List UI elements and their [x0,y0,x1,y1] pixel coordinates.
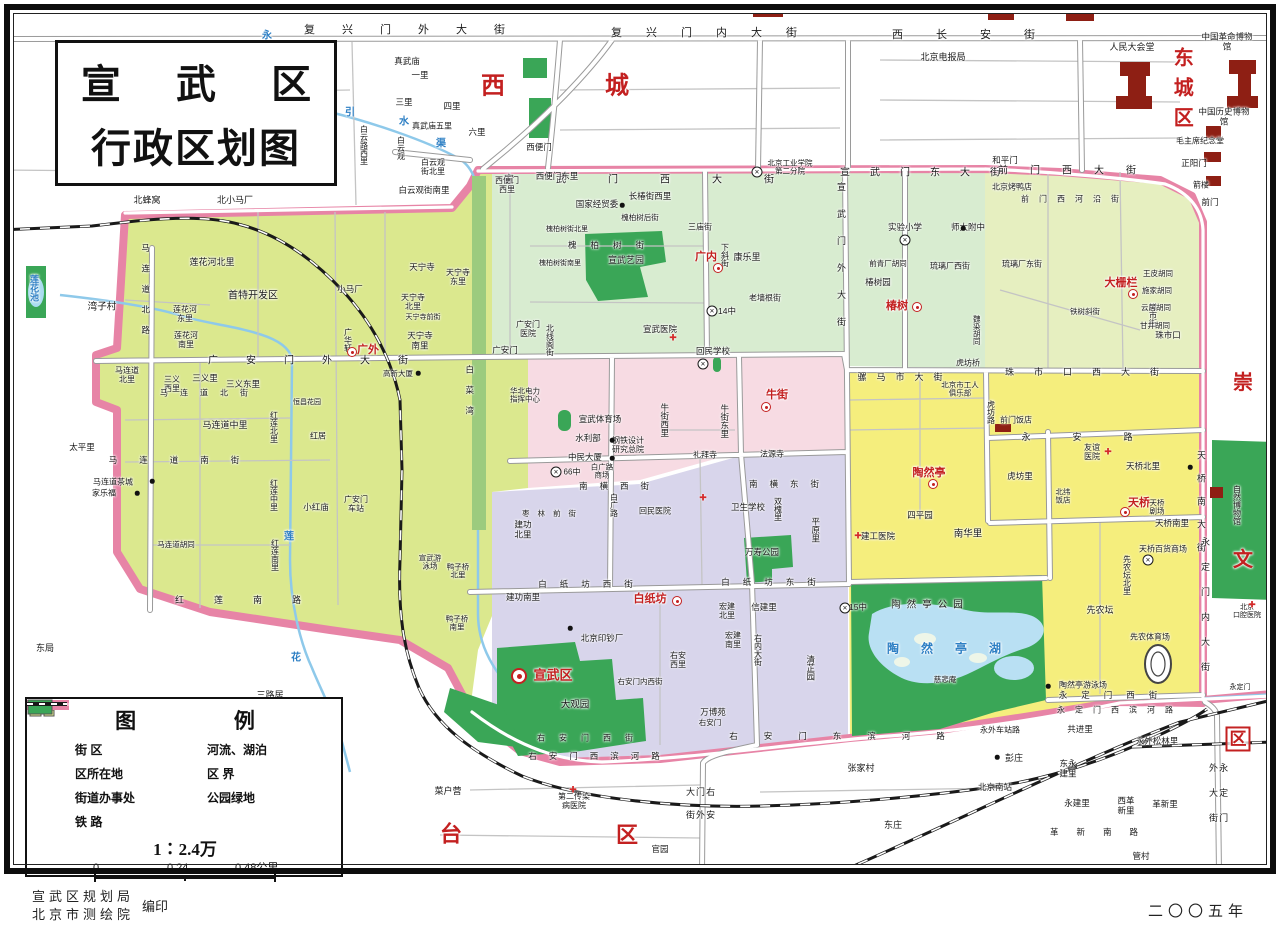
map-label: 万博苑 [700,708,726,718]
map-label: 骡马市大街 [857,372,952,382]
map-label: 宣武区 [533,669,572,684]
map-label: 官园 [651,845,668,855]
map-label: 永定门西滨河路 [1057,707,1183,716]
map-label: 复兴门内大街 [611,27,821,39]
map-label: 万寿公园 [745,548,779,558]
map-label: 前门西河沿街 [1021,196,1129,205]
map-label: 区 [616,824,638,849]
map-label: 师大附中 [951,223,985,233]
map-label: 第二传染 病医院 [558,793,590,811]
map-label: 先农坛 [1086,605,1113,615]
map-label: 东永 建里 [1059,759,1076,778]
map-label: 革新里 [1152,800,1178,810]
map-label: 西便门 西里 [495,177,519,195]
map-label: 鸭子桥 南里 [446,616,469,633]
dot-icon [1188,465,1193,470]
map-label: 永定门 [1230,684,1251,692]
map-label: 北京烤鸭店 [992,184,1032,193]
dot-icon [135,491,140,496]
publisher-suffix: 编印 [142,896,168,915]
map-label: 右安门 [699,719,722,727]
school-icon [551,467,562,478]
map-label: 建功 北里 [514,520,531,539]
map-label: 莲 [284,531,294,542]
map-label: 施家胡同 [1142,287,1172,295]
map-label: 天桥 [1128,497,1150,509]
map-label: 中国历史博物馆 [1196,107,1252,126]
svg-text:0: 0 [93,862,99,874]
map-label: 北京电报局 [920,52,965,62]
office-icon [347,347,357,357]
map-label: 一里 [411,71,428,81]
map-label: 水 [399,116,409,127]
office-icon [928,479,938,489]
map-label: 马连道 北里 [115,367,139,385]
map-label: 华北电力 指挥中心 [510,388,540,405]
huimin-school-green [713,357,721,372]
map-label: 莲花河北里 [189,257,234,267]
map-label: 引 [345,107,355,118]
dot-icon [610,456,615,461]
publisher-line2: 北京市测绘院 [32,906,134,924]
map-label: 右内大街 [753,634,762,666]
map-label: 前门西大街 [998,165,1158,176]
map-label: 中民大厦 [568,453,602,463]
map-label: 白纸坊西街 [538,580,646,590]
dot-icon [620,203,625,208]
legend-item-label: 街 区 [75,741,163,758]
map-label: 椿树园 [865,278,891,288]
map-label: 牛街西里 [659,403,669,437]
map-label: 红莲南路 [175,595,331,605]
map-label: 北小马厂 [217,195,253,205]
map-label: 琉璃厂西街 [930,263,970,272]
map-label: 天宁寺前街 [406,314,441,322]
map-label: 和平门 [992,156,1018,166]
map-label: 钢铁设计 研究总院 [612,437,644,455]
map-label: 右安门外大街 [685,776,715,844]
map-label: 66中 [564,469,581,478]
map-label: 白云观 街北里 [421,159,445,177]
map-label: 大观园 [561,701,590,712]
map-label: 红莲中里 [269,479,278,511]
map-label: 老墙根街 [749,295,781,304]
legend-item-label: 街道办事处 [75,789,163,806]
map-label: 东城区 [1170,47,1192,137]
map-label: 天桥北里 [1126,462,1160,472]
map-label: 天桥南里 [1155,519,1189,529]
map-label: 康乐里 [733,252,760,262]
map-label: 真武庙 [394,57,420,67]
map-label: 红莲北里 [269,411,278,443]
map-label: 国家经贸委 [576,200,619,210]
map-label: 永建里 [1064,799,1090,809]
map-label: 永定门西街 [1059,691,1172,701]
map-label: 白云观 [396,136,405,160]
map-label: 真武庙五里 [412,123,452,132]
map-label: 马连道北街 [160,390,260,399]
map-label: 前青厂胡同 [869,260,907,268]
map-label: 永外松林里 [1136,737,1179,747]
map-label: 人民大会堂 [1109,42,1154,52]
legend: 图 例 街 区 河流、湖泊 区所在地 区 界 街道办事处 [25,697,343,877]
map-label: 南横西街 [579,482,661,492]
map-label: 右安门西街 [537,735,647,744]
map-label: 四里 [443,102,460,112]
map-label: 天宁寺 东里 [446,269,470,287]
natural-history-museum-building [1210,487,1223,498]
map-label: 珠市口 [1155,331,1181,341]
map-label: 牛街 [766,389,788,401]
map-label: 广外 [357,344,379,356]
map-label: 14中 [718,307,736,317]
map-label: 卫生学校 [731,503,765,513]
map-title-line1: 宣 武 区 [59,52,333,110]
publication-year: 二〇〇五年 [1148,900,1248,921]
map-label: 法源寺 [760,451,784,460]
map-label: 四平园 [907,511,933,521]
map-label: 永安路 [1021,432,1174,442]
office-icon [672,596,682,606]
map-label: 大栅栏 [1105,277,1138,289]
map-label: 正阳门 [1181,159,1207,169]
map-label: 虎坊桥 [956,360,980,369]
map-label: 先农体育场 [1130,634,1170,643]
map-label: 先农坛北里 [1122,555,1131,595]
legend-item-label: 河流、湖泊 [207,741,329,758]
school-icon [1143,555,1154,566]
scale-bar: 0 0.24 0.48公里 [85,862,285,886]
map-label: 双槐里 [773,497,782,521]
region-guangwai [96,170,492,710]
map-label: 白广路 商场 [591,464,614,481]
map-label: 天宁寺 [409,263,435,273]
map-label: 槐柏树后街 [621,214,659,222]
hosp-icon: ✚ [669,333,677,344]
map-label: 广安门 医院 [516,321,540,339]
school-icon [752,167,763,178]
map-label: 宣武艺园 [608,255,644,265]
map-label: 永定门内大街 [1200,537,1210,687]
hosp-icon: ✚ [569,785,577,796]
map-label: 莲花河 南里 [174,332,198,350]
map-label: 友谊 医院 [1084,444,1100,462]
map-label: 崇 [1233,372,1253,394]
map-label: 管村 [1132,852,1149,862]
map-label: 西城 [481,74,729,101]
map-label: 牛街东里 [719,404,729,438]
map-label: 宣武游 泳场 [419,555,442,572]
map-page: 海淀区西城东城区崇文区丰台区广外广内牛街白纸坊椿树大栅栏陶然亭天桥宣武区永定河引… [0,0,1280,935]
map-label: 椿树 [886,300,908,312]
map-label: 南横东街 [749,480,831,490]
seat-icon [511,668,527,684]
region-baicaiwan [492,356,528,492]
map-label: 陶然亭湖 [887,642,1023,655]
legend-item-label: 区 界 [207,765,329,782]
map-label: 白纸坊 [634,593,667,605]
map-label: 槐柏树街南里 [539,260,581,268]
map-label: 广安门 [492,346,518,356]
map-label: 虎坊路 [986,400,995,424]
map-label: 前门 [1201,198,1218,208]
dot-icon [995,755,1000,760]
map-label: 天桥百货商场 [1139,546,1187,555]
map-label: 红莲南里 [270,539,279,571]
office-icon [713,263,723,273]
map-label: 六里 [468,128,485,138]
map-label: 西长安街 [892,29,1068,41]
map-label: 建功南里 [506,593,540,603]
map-label: 东庄 [884,820,902,830]
map-label: 渠 [436,138,446,149]
map-label: 魏染胡同 [972,315,980,345]
map-label: 右安门西滨河路 [528,752,672,762]
map-label: 宣武门东大街 [840,167,1020,178]
map-label: 小马厂 [337,285,363,295]
map-label: 鸭子桥 北里 [447,564,470,581]
riverside-greenbelt [472,176,486,530]
school-icon [900,235,911,246]
map-label: 自然博物馆 [1232,485,1241,525]
map-label: 复兴门外大街 [304,24,532,36]
publisher-line1: 宣武区规划局 [32,888,134,906]
map-label: 西革 新里 [1117,796,1134,815]
publisher-credits: 宣武区规划局 北京市测绘院 编印 [32,888,168,923]
dot-icon [150,479,155,484]
map-label: 红居 [310,433,326,442]
map-label: 家乐福 [92,490,116,499]
map-label: 王皮胡同 [1143,270,1173,278]
map-label: 马连道胡同 [157,541,195,549]
dot-icon [961,226,966,231]
map-label: 莲花池 [29,275,39,302]
map-label: 北蜂窝 [133,195,160,205]
region-guangnei [492,170,985,368]
office-icon [1128,289,1138,299]
map-label: 宏建 南里 [725,632,741,650]
map-label: 云居胡同 [1141,304,1171,312]
map-label: 彭庄 [1005,753,1023,763]
legend-item-label: 铁 路 [75,813,163,830]
map-label: 琉璃厂东街 [1002,261,1042,270]
map-label: 北纬 饭店 [1056,489,1071,506]
map-label: 天桥 剧场 [1150,500,1165,517]
map-label: 白菜湾 [464,365,474,427]
xuanwu-stadium-green [558,410,571,431]
map-label: 右安门东滨河路 [729,732,971,742]
map-label: 广安门外大街 [208,355,436,366]
map-label: 甘井胡同 [1140,322,1170,330]
legend-title: 图 例 [41,705,329,735]
map-label: 广安门 车站 [344,496,368,514]
map-label: 三义里 [192,374,218,384]
map-label: 礼拜寺 [693,452,717,461]
xiannongtan-stadium [1145,645,1171,683]
hosp-icon: ✚ [854,531,862,542]
map-label: 北京南站 [978,783,1012,793]
map-label: 北京 口腔医院 [1233,604,1261,620]
map-label: 三里 [395,98,412,108]
map-label: 陶然亭游泳场 [1059,682,1107,691]
map-label: 建工医院 [861,532,895,542]
map-label: 前门饭店 [1000,417,1032,426]
map-scale: 1∶2.4万 [41,835,329,860]
map-label: 西便门东里 [536,172,579,182]
map-label: 宣武体育场 [579,415,622,425]
map-label: 白纸坊东街 [721,578,829,588]
map-label: 永定门外大街 [1208,761,1228,839]
map-label: 白云观街南里 [398,186,449,196]
school-icon [698,359,709,370]
map-label: 革新南路 [1050,828,1156,838]
map-label: 宣武门外大街 [836,182,846,344]
map-label: 铁树斜街 [1070,308,1100,316]
map-title-line2: 行政区划图 [91,116,301,174]
map-label: 清芷园 [805,655,815,681]
map-label: 小红庙 [303,503,329,513]
map-label: 槐柏树街 [568,241,658,251]
map-label: 实验小学 [888,223,922,233]
map-label: 回民学校 [696,347,730,357]
map-label: 中国革命博物馆 [1201,32,1254,51]
map-label: 水利部 [575,434,601,444]
map-label: 毛主席纪念堂 [1176,138,1224,147]
map-label: 右安门内西街 [618,678,663,686]
map-label: 右安 西里 [670,652,686,670]
map-label: 马连道北路 [140,244,150,347]
school-icon [707,306,718,317]
map-label: 天宁寺 南里 [407,331,433,350]
map-label: 文 [1233,549,1253,571]
map-label: 南华里 [954,530,983,541]
dot-icon [416,371,421,376]
map-label: 15中 [849,603,867,613]
svg-text:0.48公里: 0.48公里 [235,862,278,874]
map-label: 恒昌花园 [293,399,321,407]
map-label: 台 [440,823,462,848]
great-hall-building [1120,62,1150,76]
map-title-box: 宣 武 区 行政区划图 [55,40,337,186]
hosp-icon: ✚ [1104,447,1112,458]
map-label: 北京印钞厂 [581,634,624,644]
map-label: 永外车站路 [980,727,1020,736]
map-label: 珠市口西大街 [1005,367,1179,377]
map-label: 广内 [695,251,717,263]
dot-icon [1046,684,1051,689]
map-label: 白广路 [609,493,618,517]
map-label: 花 [291,652,301,663]
map-label: 枣林前街 [522,510,584,518]
map-label: 长椿街西里 [629,192,672,202]
map-label: 陶然亭 [913,467,946,479]
map-label: 白云路西里 [359,125,368,165]
map-label: 东局 [36,643,54,653]
svg-text:0.24: 0.24 [167,862,188,874]
revolution-museum-building [1229,60,1256,74]
map-label: 共进里 [1067,725,1093,735]
hosp-icon: ✚ [699,493,707,504]
map-label: 陶然亭公园 [891,601,969,612]
map-label: 箭楼 [1193,182,1209,191]
map-label: 湾子村 [88,303,117,314]
map-label: 虎坊里 [1007,472,1033,482]
office-icon [912,302,922,312]
school-icon [840,603,851,614]
dot-icon [610,438,615,443]
map-label: 太平里 [69,443,95,453]
map-label: 信建里 [751,603,777,613]
dot-icon [568,626,573,631]
map-label: 平原里 [810,517,820,543]
office-icon [761,402,771,412]
map-label: 北京市工人 俱乐部 [941,382,979,399]
legend-item-label: 公园绿地 [207,789,329,806]
map-label: 三庙街 [688,224,712,233]
map-label: 高新大厦 [383,370,413,378]
map-label: 天宁寺 北里 [401,294,425,312]
map-label: 张家村 [847,763,874,773]
map-label: 西便门 [526,143,552,153]
map-label: 宏建 北里 [719,603,735,621]
hosp-icon: ✚ [1248,600,1256,611]
map-label: 马连道南街 [109,456,262,466]
map-label: 槐柏树街北里 [546,226,588,234]
map-label: 首特开发区 [228,290,278,301]
map-label: 慈悲庵 [934,676,957,684]
map-label: 北线阁街 [545,324,554,356]
map-label: 回民医院 [639,508,671,517]
map-label: 菜户营 [434,786,461,796]
map-label: 莲花河 东里 [173,306,197,324]
map-label: 马连道中里 [202,420,247,430]
legend-item-label: 区所在地 [75,765,163,782]
office-icon [1120,507,1130,517]
map-label: 区 [1226,726,1251,751]
map-label: 马连道茶城 [93,479,133,488]
